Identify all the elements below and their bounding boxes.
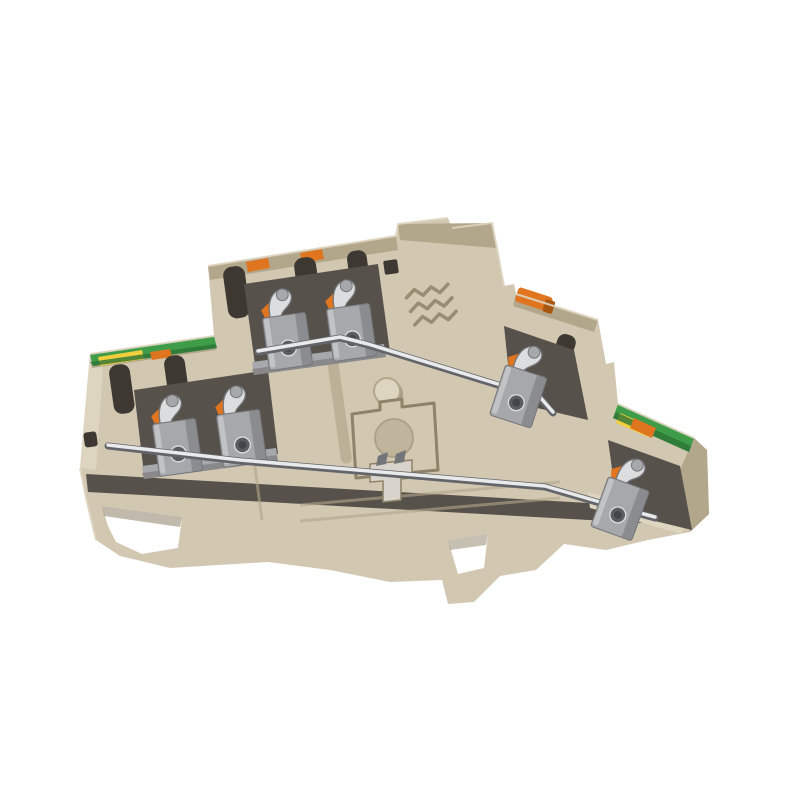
- left-end-hole: [83, 431, 98, 448]
- tower-square-hole: [383, 259, 399, 275]
- product-photo: [0, 0, 800, 800]
- terminal-block-illustration: [0, 0, 800, 800]
